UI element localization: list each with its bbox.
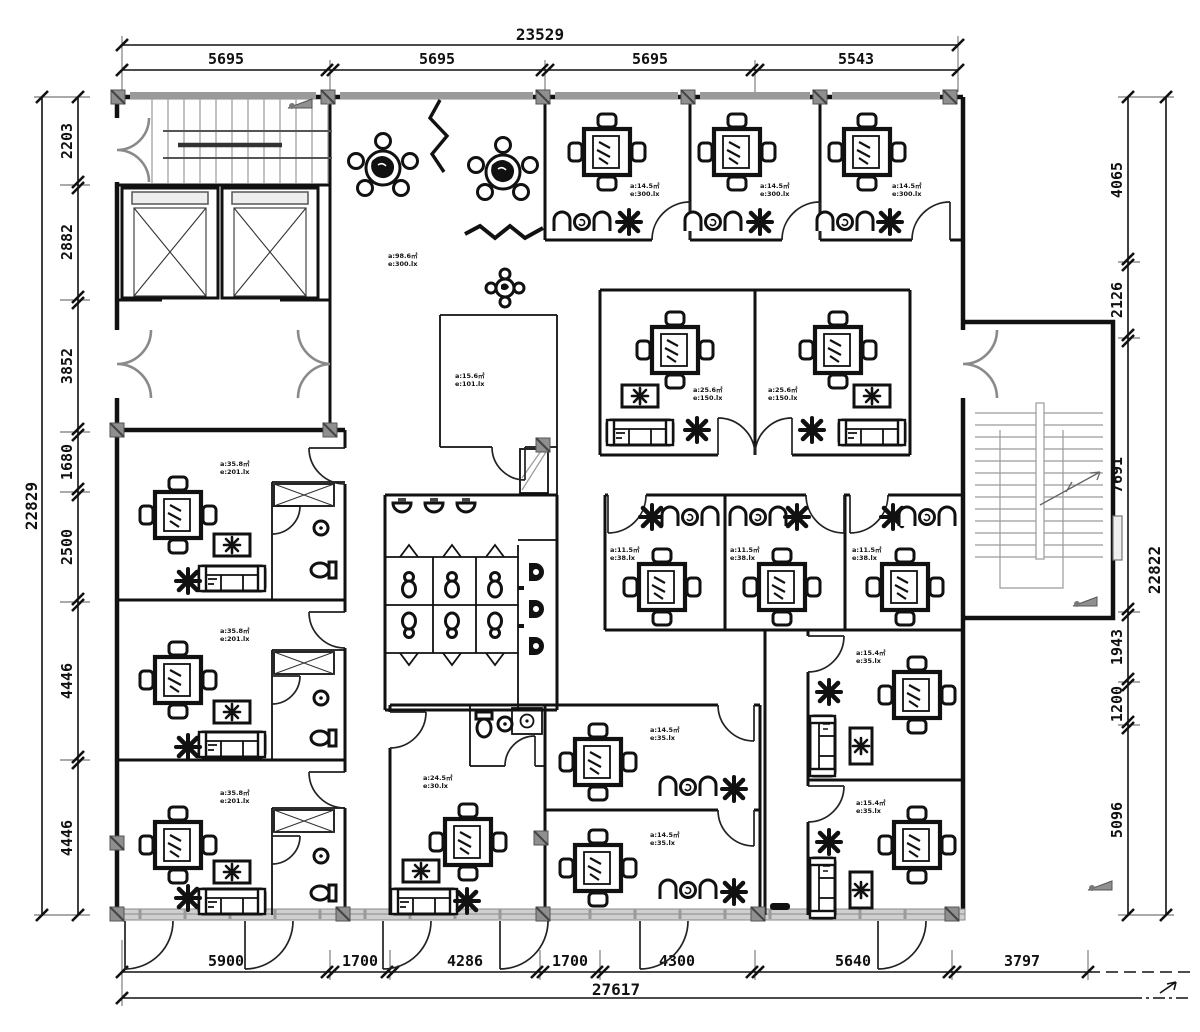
dim-bottom-seg-6: 5640	[835, 952, 871, 970]
office-top-2: a:14.5㎡ e:300.lx	[685, 114, 790, 234]
door-closer-icon	[1088, 881, 1112, 891]
coffee-table-icon	[403, 860, 439, 882]
dim-top-seg-1: 5695	[208, 50, 244, 68]
armchair-set-icon	[730, 507, 786, 526]
room-label: a:11.5㎡	[730, 545, 760, 554]
dim-right-seg-5: 1200	[1108, 686, 1126, 722]
dim-bottom-total: 27617	[592, 980, 640, 999]
room-label: e:300.lx	[892, 190, 922, 198]
office-top-3: a:14.5㎡ e:300.lx	[817, 114, 922, 234]
small-table-icon	[486, 269, 524, 307]
elevator-door	[232, 192, 308, 204]
table-icon	[829, 114, 905, 190]
room-label: e:30.lx	[423, 782, 449, 790]
window-strip	[340, 92, 533, 99]
room-label: a:14.5㎡	[630, 181, 660, 190]
bottom-mid-room-2: a:14.5㎡ e:35.lx	[560, 830, 746, 906]
door-mat	[770, 903, 790, 910]
lounge-area: a:98.6㎡ e:300.lx a:15.6㎡ e:101.lx	[349, 100, 544, 388]
door-closer-icon	[288, 99, 312, 109]
table-icon	[879, 807, 955, 883]
divider-zigzag	[430, 100, 447, 172]
table-icon	[140, 642, 216, 718]
dim-chain-left: 22829 2203 2882 3852 1680 2500 4446 4446	[22, 91, 90, 921]
dim-left-seg-4: 1680	[58, 444, 76, 480]
toilet-icon	[403, 613, 416, 638]
elevator-door	[132, 192, 208, 204]
dim-left-seg-6: 4446	[58, 663, 76, 699]
toilet-icon	[489, 613, 502, 638]
table-icon	[560, 830, 636, 906]
bottom-right-room-1: a:15.4㎡ e:35.lx	[810, 648, 955, 776]
sink-icon	[425, 498, 443, 512]
room-label: e:300.lx	[388, 260, 418, 268]
toilet-icon	[446, 573, 459, 598]
room-label: a:15.6㎡	[455, 371, 485, 380]
room-label: a:98.6㎡	[388, 251, 418, 260]
coffee-table-icon	[214, 701, 250, 723]
room-label: a:14.5㎡	[760, 181, 790, 190]
table-icon	[699, 114, 775, 190]
plant-icon	[176, 886, 200, 910]
toilet-icon	[446, 613, 459, 638]
meeting-table-icon	[349, 134, 418, 196]
plant-icon	[176, 569, 200, 593]
dim-right-seg-3: 7691	[1108, 457, 1126, 493]
plant-icon	[785, 505, 809, 529]
room-label: a:14.5㎡	[650, 725, 680, 734]
dim-left-seg-2: 2882	[58, 224, 76, 260]
plant-icon	[817, 830, 841, 854]
plant-icon	[685, 418, 709, 442]
dim-right-seg-6: 5096	[1108, 802, 1126, 838]
restroom	[393, 498, 544, 665]
dim-top-total: 23529	[516, 25, 564, 44]
room-label: a:35.8㎡	[220, 626, 250, 635]
sink-icon	[498, 717, 512, 731]
toilet-icon	[476, 712, 492, 737]
plant-icon	[617, 210, 641, 234]
coffee-table-icon	[850, 728, 872, 764]
table-icon	[560, 724, 636, 800]
meeting-table-icon	[469, 138, 538, 200]
room-label: e:35.lx	[856, 807, 882, 815]
dim-right-seg-1: 4065	[1108, 162, 1126, 198]
armchair-set-icon	[554, 212, 610, 231]
plant-icon	[640, 505, 664, 529]
room-label: e:150.lx	[768, 394, 798, 402]
office-top-1: a:14.5㎡ e:300.lx	[554, 114, 660, 234]
dim-bottom-seg-5: 4300	[659, 952, 695, 970]
table-icon	[569, 114, 645, 190]
plant-icon	[817, 680, 841, 704]
room-label: e:201.lx	[220, 635, 250, 643]
room-label: a:14.5㎡	[892, 181, 922, 190]
dim-bottom-seg-1: 5900	[208, 952, 244, 970]
dim-bottom-seg-4: 1700	[552, 952, 588, 970]
suite-room-3: a:35.8㎡ e:201.lx	[140, 788, 336, 914]
window-stub	[1113, 516, 1122, 560]
urinal-icon	[529, 600, 544, 618]
window-strip	[832, 92, 940, 99]
dim-chain-bottom: 5900 1700 4286 1700 4300 5640 3797 27617	[116, 940, 1192, 1006]
sofa-icon	[199, 566, 265, 591]
dim-left-total: 22829	[22, 482, 41, 530]
room-label: a:25.6㎡	[768, 385, 798, 394]
dim-bottom-seg-3: 4286	[447, 952, 483, 970]
room-label: a:35.8㎡	[220, 788, 250, 797]
room-label: e:150.lx	[693, 394, 723, 402]
floor-plan-page: 23529 5695 5695 5695 5543 22829 2203 288…	[0, 0, 1200, 1032]
coffee-table-icon	[622, 385, 658, 407]
armchair-set-icon	[685, 212, 741, 231]
bottom-mid-room-1: a:14.5㎡ e:35.lx	[560, 724, 746, 801]
bottom-right-room-2: a:15.4㎡ e:35.lx	[770, 798, 955, 918]
table-icon	[637, 312, 713, 388]
suite-room-2: a:35.8㎡ e:201.lx	[140, 626, 336, 759]
table-icon	[140, 807, 216, 883]
dim-chain-top: 23529 5695 5695 5695 5543	[116, 25, 964, 92]
dim-right-seg-4: 1943	[1108, 629, 1126, 665]
room-label: e:38.lx	[610, 554, 636, 562]
room-label: e:35.lx	[650, 839, 676, 847]
sink-icon	[457, 498, 475, 512]
sofa-icon	[810, 858, 835, 918]
dim-top-seg-3: 5695	[632, 50, 668, 68]
window-strip	[130, 92, 316, 99]
mid-band-room-3: a:11.5㎡ e:38.lx	[852, 505, 955, 625]
room-label: a:11.5㎡	[610, 545, 640, 554]
sofa-icon	[199, 732, 265, 757]
dim-top-seg-2: 5695	[419, 50, 455, 68]
mid-band-room-1: a:11.5㎡ e:38.lx	[610, 505, 718, 625]
plant-icon	[748, 210, 772, 234]
toilet-icon	[311, 562, 336, 578]
armchair-set-icon	[662, 507, 718, 526]
armchair-set-icon	[817, 212, 873, 231]
sink-icon	[393, 498, 411, 512]
window-strip	[700, 92, 810, 99]
dim-left-seg-7: 4446	[58, 820, 76, 856]
door-closer-icon	[1073, 597, 1097, 607]
table-icon	[744, 549, 820, 625]
room-label: a:15.4㎡	[856, 798, 886, 807]
table-icon	[140, 477, 216, 553]
coffee-table-icon	[214, 534, 250, 556]
sink-icon	[314, 691, 328, 705]
sofa-icon	[391, 889, 457, 914]
room-label: e:300.lx	[630, 190, 660, 198]
room-label: e:38.lx	[852, 554, 878, 562]
room-label: a:15.4㎡	[856, 648, 886, 657]
window-strip	[555, 92, 678, 99]
sofa-icon	[607, 420, 673, 445]
armchair-set-icon	[899, 507, 955, 526]
room-label: e:300.lx	[760, 190, 790, 198]
toilet-icon	[311, 885, 336, 901]
table-icon	[867, 549, 943, 625]
dim-chain-right: 22822 4065 2126 7691 1943 1200 5096	[1108, 91, 1174, 921]
room-label: a:11.5㎡	[852, 545, 882, 554]
sink-icon	[314, 521, 328, 535]
room-label: a:14.5㎡	[650, 830, 680, 839]
stairwell-annex	[975, 403, 1112, 891]
toilet-icon	[489, 573, 502, 598]
toilet-icon	[311, 730, 336, 746]
urinal-icon	[529, 637, 544, 655]
room-label: e:35.lx	[650, 734, 676, 742]
table-icon	[430, 804, 506, 880]
armchair-set-icon	[660, 880, 716, 899]
plant-icon	[800, 418, 824, 442]
table-icon	[624, 549, 700, 625]
room-label: e:38.lx	[730, 554, 756, 562]
divider-wave	[465, 226, 543, 238]
stairwell-top-left	[152, 99, 332, 183]
room-label: e:201.lx	[220, 468, 250, 476]
plant-icon	[722, 777, 746, 801]
armchair-set-icon	[660, 777, 716, 796]
dim-right-total: 22822	[1145, 546, 1164, 594]
dim-bottom-seg-2: 1700	[342, 952, 378, 970]
elevators	[122, 188, 318, 298]
mid-room-2: a:25.6㎡ e:150.lx	[768, 312, 905, 445]
room-label: a:25.6㎡	[693, 385, 723, 394]
coffee-table-icon	[854, 385, 890, 407]
plant-icon	[455, 889, 479, 913]
dim-right-seg-2: 2126	[1108, 282, 1126, 318]
dim-top-seg-4: 5543	[838, 50, 874, 68]
table-icon	[879, 657, 955, 733]
dim-left-seg-1: 2203	[58, 123, 76, 159]
plant-icon	[878, 210, 902, 234]
toilet-icon	[403, 573, 416, 598]
coffee-table-icon	[214, 861, 250, 883]
room-label: e:101.lx	[455, 380, 485, 388]
mid-band-room-2: a:11.5㎡ e:38.lx	[730, 505, 820, 625]
room-label: e:201.lx	[220, 797, 250, 805]
sofa-icon	[839, 420, 905, 445]
dim-left-seg-3: 3852	[58, 348, 76, 384]
floor-plan-canvas: 23529 5695 5695 5695 5543 22829 2203 288…	[0, 0, 1200, 1032]
room-label: a:35.8㎡	[220, 459, 250, 468]
sofa-icon	[199, 889, 265, 914]
dim-bottom-seg-7: 3797	[1004, 952, 1040, 970]
plant-icon	[722, 880, 746, 904]
room-label: a:24.5㎡	[423, 773, 453, 782]
suite-room-1: a:35.8㎡ e:201.lx	[140, 459, 336, 593]
sink-icon	[314, 849, 328, 863]
dim-left-seg-5: 2500	[58, 529, 76, 565]
room-label: e:35.lx	[856, 657, 882, 665]
urinal-icon	[529, 563, 544, 581]
sofa-icon	[810, 716, 835, 776]
table-icon	[800, 312, 876, 388]
plant-icon	[176, 735, 200, 759]
mid-room-1: a:25.6㎡ e:150.lx	[607, 312, 723, 445]
walls	[110, 90, 1122, 921]
coffee-table-icon	[850, 872, 872, 908]
